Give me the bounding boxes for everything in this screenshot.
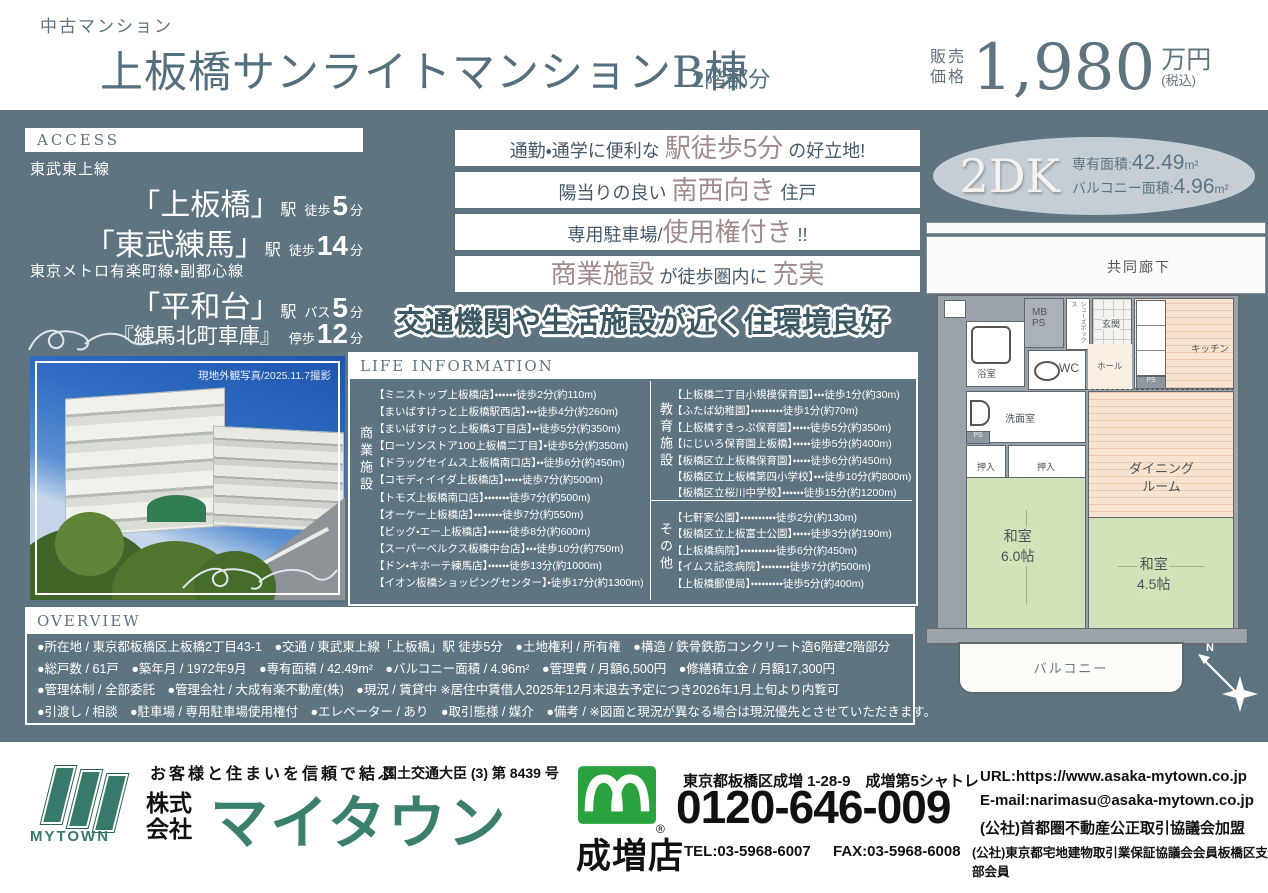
photo-caption: 現地外観写真/2025.11.7撮影 bbox=[198, 368, 331, 383]
rail-line-1: 東武東上線 bbox=[30, 158, 110, 179]
tel-number: TEL:03-5968-6007 bbox=[684, 843, 811, 860]
list-item: 【オーケー上板橋店】・・・・・・・・徒歩7分(約550m) bbox=[374, 507, 644, 524]
list-item: 【ミニストップ上板橋店】・・・・・・徒歩2分(約110m) bbox=[374, 387, 644, 404]
company-email: E-mail:narimasu@asaka-mytown.co.jp bbox=[980, 792, 1254, 809]
svg-text:N: N bbox=[1206, 642, 1214, 654]
unit-areas: 専有面積:42.49m² バルコニー面積:4.96m² bbox=[1072, 152, 1228, 200]
unit-outline: MBPS シューズボックス 玄関 キッチン PS 浴室 WC bbox=[936, 294, 1240, 646]
overview-line: ●管理体制 / 全部委託 ●管理会社 / 大成有楽不動産(株) ●現況 / 賃貸… bbox=[37, 680, 936, 702]
compass-north-icon: N bbox=[1188, 640, 1264, 722]
station-row: 「東武練馬」駅徒歩14分 bbox=[25, 220, 363, 264]
pipe-space: PS bbox=[966, 431, 990, 444]
pipe-space: PS bbox=[1136, 376, 1166, 389]
list-item: 【イオン板橋ショッピングセンター】・徒歩17分(約1300m) bbox=[374, 575, 644, 592]
station-row: 「上板橋」駅徒歩5分 bbox=[25, 180, 363, 224]
list-item: 【上板橋郵便局】・・・・・・・・・徒歩5分(約400m) bbox=[672, 576, 892, 592]
property-category: 中古マンション bbox=[40, 12, 173, 37]
mytown-logo: MYTOWN bbox=[30, 764, 150, 852]
price-tax-note: (税込) bbox=[1161, 73, 1211, 89]
list-item: 【ローソンストア100上板橋二丁目】・徒歩5分(約350m) bbox=[374, 438, 644, 455]
list-item: 【ドン・キホーテ練馬店】・・・・・・徒歩13分(約1000m) bbox=[374, 558, 644, 575]
education-list: 【上板橋二丁目小規模保育園】・・・徒歩1分(約30m) 【ふたば幼稚園】・・・・… bbox=[672, 387, 911, 502]
row-divider bbox=[650, 500, 912, 501]
selling-point-banner-2: 陽当りの良い 南西向き 住戸 bbox=[455, 172, 920, 208]
balcony: バルコニー bbox=[958, 642, 1184, 694]
list-item: 【まいばすけっと上板橋3丁目店】・・徒歩5分(約350m) bbox=[374, 421, 644, 438]
life-information-section: LIFE INFORMATION 商業施設 【ミニストップ上板橋店】・・・・・・… bbox=[348, 352, 918, 606]
floor-note: 2階部分 bbox=[692, 62, 770, 94]
list-item: 【板橋区立上板橋保育園】・・・・・徒歩6分(約450m) bbox=[672, 453, 911, 469]
price-value: 1,980 bbox=[972, 36, 1155, 100]
overview-body: ●所在地 / 東京都板橋区上板橋2丁目43-1 ●交通 / 東武東上線「上板橋」… bbox=[37, 637, 936, 723]
list-item: 【板橋区立上板富士公園】・・・・・徒歩3分(約190m) bbox=[672, 526, 892, 542]
meter-box bbox=[944, 300, 966, 318]
category-label-commercial: 商業施設 bbox=[356, 426, 375, 494]
list-item: 【にじいろ保育園上板橋】・・・・・徒歩5分(約400m) bbox=[672, 436, 911, 452]
rail-line-2: 東京メトロ有楽町線・副都心線 bbox=[30, 260, 244, 281]
fax-number: FAX:03-5968-6008 bbox=[833, 843, 961, 860]
list-item: 【ドラッグセイムス上板橋南口店】・・徒歩6分(約450m) bbox=[374, 455, 644, 472]
flourish-ornament bbox=[25, 322, 175, 356]
other-list: 【七軒家公園】・・・・・・・・・・徒歩2分(約130m) 【板橋区立上板富士公園… bbox=[672, 510, 892, 592]
association-membership-2: (公社)東京都宅地建物取引業保証協議会会員板橋区支部会員 bbox=[972, 842, 1268, 880]
list-item: 【イムス記念病院】・・・・・・・・徒歩7分(約500m) bbox=[672, 559, 892, 575]
shoe-box: シューズボックス bbox=[1066, 298, 1090, 350]
overview-header: OVERVIEW bbox=[27, 609, 913, 634]
toilet: WC bbox=[1028, 350, 1086, 390]
selling-point-banner-3: 専用駐車場/使用権付き !! bbox=[455, 214, 920, 250]
hall: ホール bbox=[1088, 344, 1132, 389]
association-membership-1: (公社)首都圏不動産公正取引協議会加盟 bbox=[980, 817, 1245, 838]
bush bbox=[55, 512, 124, 575]
exterior-photo: 現地外観写真/2025.11.7撮影 bbox=[30, 356, 345, 600]
price-unit: 万円 bbox=[1161, 47, 1211, 73]
company-prefix: 株式 会社 bbox=[146, 790, 192, 842]
selling-point-banner-4: 商業施設 が徒歩圏内に 充実 bbox=[455, 256, 920, 292]
commercial-list: 【ミニストップ上板橋店】・・・・・・徒歩2分(約110m) 【まいばすけっと上板… bbox=[374, 387, 644, 592]
japanese-room-45: 和室 4.5帖 bbox=[1088, 517, 1234, 638]
list-item: 【まいばすけっと上板橋駅西店】・・・徒歩4分(約260m) bbox=[374, 404, 644, 421]
price-block: 販売 価格 1,980 万円 (税込) bbox=[930, 36, 1211, 100]
freedial-icon bbox=[578, 766, 656, 824]
page-title: 上板橋サンライトマンションB棟 bbox=[100, 38, 749, 100]
selling-point-banner-1: 通勤・通学に便利な 駅徒歩5分 の好立地! bbox=[455, 130, 920, 166]
freedial-number: 0120-646-009 bbox=[676, 780, 950, 834]
list-item: 【七軒家公園】・・・・・・・・・・徒歩2分(約130m) bbox=[672, 510, 892, 526]
unit-type-badge: 2DK 専有面積:42.49m² バルコニー面積:4.96m² bbox=[933, 137, 1255, 215]
life-information-header: LIFE INFORMATION bbox=[350, 354, 916, 379]
japanese-room-6: 和室 6.0帖 bbox=[966, 477, 1086, 638]
list-item: 【スーパーベルクス板橋中台店】・・・徒歩10分(約750m) bbox=[374, 541, 644, 558]
company-url: URL:https://www.asaka-mytown.co.jp bbox=[980, 768, 1247, 785]
column-divider bbox=[650, 381, 651, 600]
list-item: 【上板橋二丁目小規模保育園】・・・徒歩1分(約30m) bbox=[672, 387, 911, 403]
logo-text: MYTOWN bbox=[30, 828, 110, 845]
unit-type: 2DK bbox=[960, 149, 1061, 203]
overview-line: ●引渡し / 相談 ●駐車場 / 専用駐車場使用権付 ●エレベーター / あり … bbox=[37, 702, 936, 724]
overview-line: ●所在地 / 東京都板橋区上板橋2丁目43-1 ●交通 / 東武東上線「上板橋」… bbox=[37, 637, 936, 659]
list-item: 【コモディイイダ上板橋店】・・・・・徒歩7分(約500m) bbox=[374, 472, 644, 489]
corridor-wall bbox=[926, 222, 1266, 234]
price-label: 販売 価格 bbox=[930, 48, 966, 88]
entrance-canopy bbox=[147, 495, 207, 522]
list-item: 【上板橋すきっぷ保育園】・・・・・徒歩5分(約350m) bbox=[672, 420, 911, 436]
list-item: 【トモズ上板橋南口店】・・・・・・・徒歩7分(約500m) bbox=[374, 490, 644, 507]
genkan-entrance: 玄関 bbox=[1092, 298, 1132, 348]
list-item: 【ふたば幼稚園】・・・・・・・・・徒歩1分(約70m) bbox=[672, 403, 911, 419]
access-section-header: ACCESS bbox=[25, 128, 363, 152]
kitchen-counter bbox=[1136, 300, 1166, 376]
catchphrase: 交通機関や生活施設が近く住環境良好 bbox=[360, 299, 925, 341]
list-item: 【上板橋病院】・・・・・・・・・・徒歩6分(約450m) bbox=[672, 543, 892, 559]
common-corridor: 共同廊下 bbox=[926, 236, 1266, 294]
plan-dashed-line bbox=[1086, 389, 1234, 390]
branch-name: 成増店 bbox=[576, 828, 684, 879]
mb-ps-shaft: MBPS bbox=[1024, 298, 1064, 348]
overview-section: OVERVIEW ●所在地 / 東京都板橋区上板橋2丁目43-1 ●交通 / 東… bbox=[25, 607, 915, 725]
list-item: 【板橋区立上板橋第四小学校】・・・徒歩10分(約800m) bbox=[672, 469, 911, 485]
price-unit-block: 万円 (税込) bbox=[1161, 47, 1211, 89]
list-item: 【ビッグ・エー上板橋店】・・・・・・徒歩8分(約600m) bbox=[374, 524, 644, 541]
floor-plan: 共同廊下 MBPS シューズボックス 玄関 キッチン PS bbox=[926, 222, 1266, 722]
flyer-page: 中古マンション 上板橋サンライトマンションB棟 2階部分 販売 価格 1,980… bbox=[0, 0, 1268, 893]
flourish-ornament bbox=[179, 556, 339, 596]
bathroom: 浴室 bbox=[966, 321, 1025, 387]
overview-line: ●総戸数 / 61戸 ●築年月 / 1972年9月 ●専有面積 / 42.49m… bbox=[37, 659, 936, 681]
company-name: マイタウン bbox=[210, 776, 508, 860]
